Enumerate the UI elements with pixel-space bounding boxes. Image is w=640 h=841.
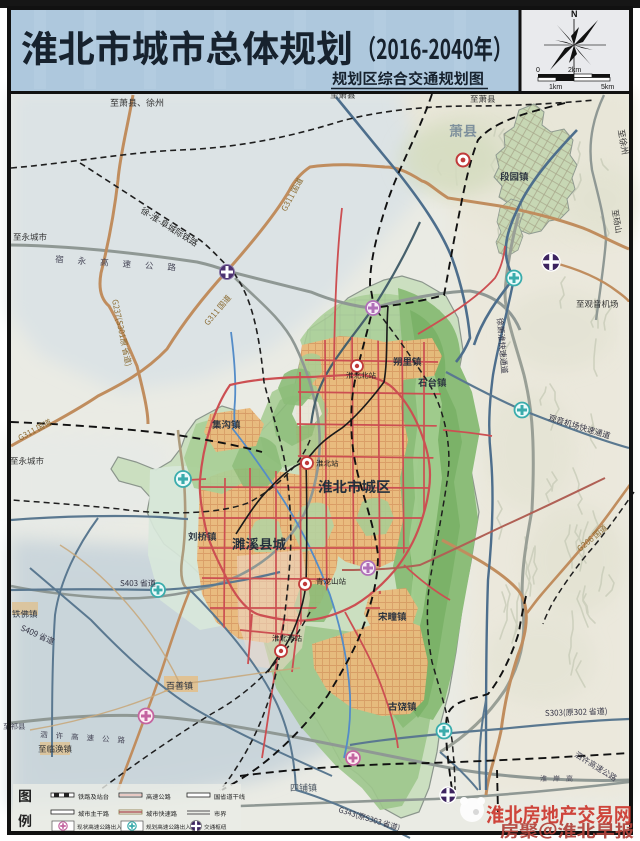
- svg-text:1km: 1km: [549, 84, 562, 91]
- svg-text:5km: 5km: [601, 84, 614, 91]
- svg-text:2km: 2km: [568, 67, 581, 74]
- svg-text:0: 0: [536, 67, 540, 74]
- svg-text:N: N: [571, 9, 578, 19]
